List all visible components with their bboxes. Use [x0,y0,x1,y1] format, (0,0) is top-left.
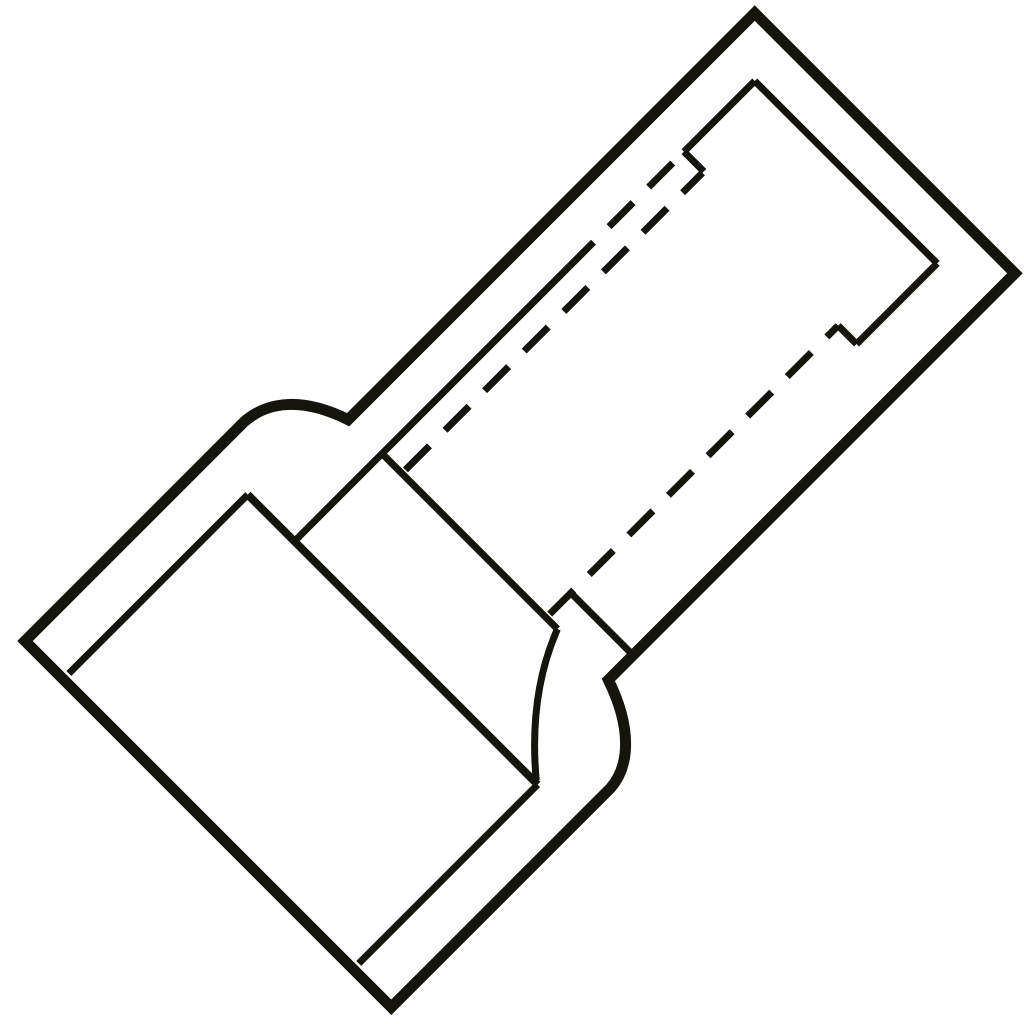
barrel-left-end-edge [382,454,557,629]
funnel-flange-edge [248,495,538,785]
connector-technical-drawing [0,0,1024,1024]
sleeve-inner-cross-edge [571,593,635,657]
drawing-page [0,0,1024,1024]
funnel-bore-bottom-edge [359,785,538,964]
connector-outline [25,0,1024,1007]
connector-rotated-group [25,0,1024,1007]
shoulder-inner-arc [471,629,622,780]
barrel-top-step-tick [684,152,704,172]
barrel-bottom-step-tick [838,326,856,344]
barrel-end-bottom-side [857,263,938,344]
funnel-bore-top-edge [69,495,248,674]
bore-hidden-line-lower [550,326,838,614]
barrel-end-top-side [684,81,755,152]
